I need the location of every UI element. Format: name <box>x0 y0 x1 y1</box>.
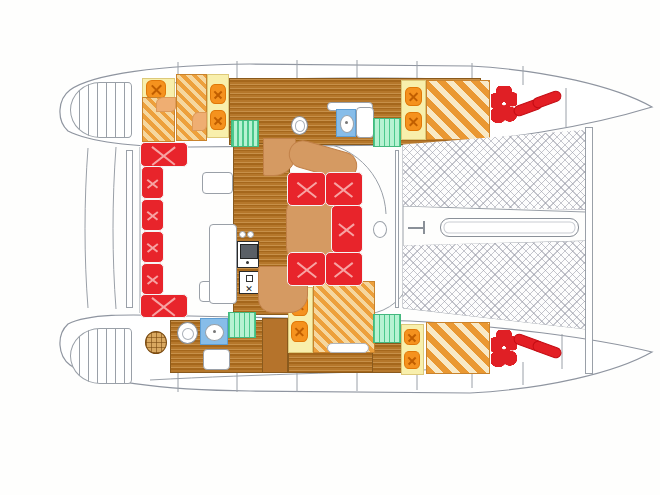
stern-steps-top-hull <box>70 82 132 138</box>
hull-bottom-head-sink-vanity <box>200 318 228 345</box>
galley-burner-2 <box>247 231 254 238</box>
hull-top-head-cabinet <box>356 107 374 138</box>
catamaran-floorplan <box>0 0 660 495</box>
hull-top-mid-berth-pillow-2 <box>210 110 226 130</box>
hull-top-fwd-companionway-steps <box>373 118 401 147</box>
stern-steps-bottom-hull <box>70 328 132 384</box>
galley-counter <box>209 224 237 304</box>
cockpit-settee-cushion-1 <box>140 142 188 167</box>
cockpit-settee-cushion-3 <box>141 199 164 231</box>
cockpit-settee-cushion-2 <box>141 166 164 199</box>
forepeak-bottom-fender-2 <box>531 339 563 360</box>
hull-bottom-fwd-berth-mattress <box>426 322 490 374</box>
dinette-cushion-bottom-right <box>325 252 363 286</box>
hull-top-mid-berth-pillow-1 <box>210 84 226 104</box>
dinette-cushion-bottom-left <box>287 252 326 286</box>
salon-cabinet-3 <box>203 349 230 370</box>
dinette-table <box>286 199 334 260</box>
bowsprit-plank <box>440 218 579 237</box>
hull-bottom-fwd-berth-pillow-2 <box>404 351 420 369</box>
hull-top-head-sink-vanity <box>336 109 356 137</box>
furniture-layer <box>0 0 660 495</box>
hull-top-aft-berth-corner <box>156 97 176 112</box>
forepeak-top-fender-2 <box>531 89 563 110</box>
galley-sink-unit <box>237 241 259 268</box>
hull-top-fwd-berth-mattress <box>426 80 490 140</box>
cockpit-settee-cushion-5 <box>141 263 164 295</box>
hull-top-mid-berth-corner <box>192 112 207 131</box>
hull-bottom-mid-berth-pillow-2 <box>291 321 308 342</box>
hull-top-fwd-berth-pillow-2 <box>405 112 422 131</box>
hull-top-head-toilet <box>291 116 308 135</box>
galley-stove-oven <box>239 271 259 294</box>
forepeak-top-cushion-cluster <box>491 86 517 123</box>
hull-bottom-head-toilet <box>177 322 198 344</box>
forward-crossbeam <box>585 127 593 374</box>
dinette-cushion-right <box>331 205 363 253</box>
hull-bottom-fwd-companionway-steps <box>373 314 401 343</box>
cockpit-settee-cushion-4 <box>141 231 164 263</box>
anchor-windlass-icon <box>408 220 434 235</box>
dinette-cushion-top-left <box>287 172 326 206</box>
salon-cabinet-1 <box>202 172 233 194</box>
hull-top-aft-companionway-steps <box>231 120 259 147</box>
hull-top-fwd-berth-pillow-1 <box>405 87 422 106</box>
hull-bottom-floor-fwd <box>372 343 402 373</box>
dinette-cushion-top-right <box>325 172 363 206</box>
hull-bottom-aft-companionway-steps <box>228 312 256 338</box>
salon-door-track <box>395 150 399 308</box>
hull-bottom-mid-berth-bolster <box>327 343 369 353</box>
hull-bottom-shower-seat <box>145 331 167 354</box>
hull-bottom-fwd-berth-pillow-1 <box>404 329 420 345</box>
hull-bottom-wardrobe <box>262 318 288 373</box>
forepeak-bottom-cushion-cluster <box>491 330 517 367</box>
cockpit-aft-bench <box>126 150 133 308</box>
salon-deck-hatch <box>373 221 387 238</box>
cockpit-settee-cushion-6 <box>140 294 188 318</box>
trampoline-net-bottom <box>402 240 588 332</box>
galley-burner-1 <box>239 231 246 238</box>
